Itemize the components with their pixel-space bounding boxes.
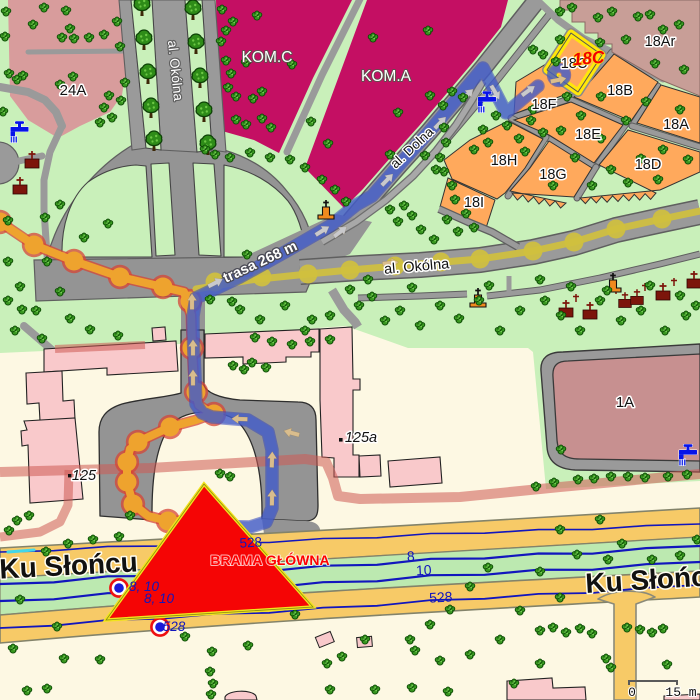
svg-text:528: 528 xyxy=(163,619,186,634)
svg-text:528: 528 xyxy=(239,534,262,550)
svg-text:18F: 18F xyxy=(532,97,557,113)
svg-text:18A: 18A xyxy=(663,117,689,133)
svg-text:KOM.A: KOM.A xyxy=(361,68,412,85)
svg-text:8: 8 xyxy=(406,548,415,564)
svg-text:24A: 24A xyxy=(60,82,87,99)
svg-text:18Ar: 18Ar xyxy=(645,34,676,50)
svg-text:18G: 18G xyxy=(539,167,566,183)
svg-text:528: 528 xyxy=(429,588,453,605)
svg-text:10: 10 xyxy=(416,562,433,579)
svg-text:18D: 18D xyxy=(635,157,662,173)
svg-text:BRAMA GŁÓWNA: BRAMA GŁÓWNA xyxy=(210,551,329,568)
svg-text:1A: 1A xyxy=(616,394,634,411)
svg-text:18C: 18C xyxy=(572,47,606,70)
svg-text:KOM.C: KOM.C xyxy=(242,49,293,66)
svg-text:8, 10: 8, 10 xyxy=(144,591,175,606)
svg-text:125a: 125a xyxy=(345,430,377,446)
svg-text:18E: 18E xyxy=(575,127,601,143)
svg-text:0: 0 xyxy=(628,685,636,700)
svg-text:18B: 18B xyxy=(607,83,633,99)
svg-text:18H: 18H xyxy=(491,153,518,169)
svg-text:125: 125 xyxy=(72,468,97,484)
svg-text:18I: 18I xyxy=(464,195,484,211)
svg-text:15 m: 15 m xyxy=(665,685,696,700)
